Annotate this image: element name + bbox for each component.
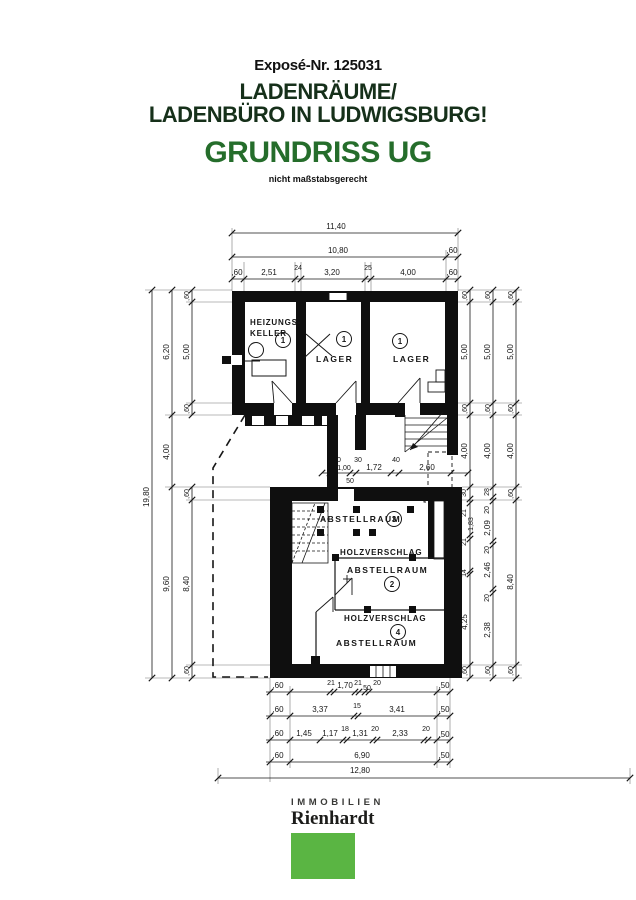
- dim-label: 18: [341, 726, 349, 733]
- dim-label: ,60: [508, 404, 515, 414]
- dim-label: ,60: [446, 246, 458, 255]
- dim-label: ,60: [508, 489, 515, 499]
- dim-label: ,60: [184, 291, 191, 301]
- room-number: 1: [281, 336, 286, 345]
- dim-label: ,60: [231, 268, 243, 277]
- dim-label: 1,17: [322, 729, 338, 738]
- dim-label: 10,80: [328, 246, 349, 255]
- dim-label: 2,46: [483, 562, 492, 578]
- brand-immobilien: IMMOBILIEN: [291, 797, 384, 808]
- dim-label: ,60: [272, 729, 284, 738]
- dim-label: ,60: [462, 666, 469, 676]
- dim-label: ,60: [184, 489, 191, 499]
- dim-label: 5,00: [506, 344, 515, 360]
- dim-label: 21: [461, 538, 468, 546]
- dim-label: 14: [461, 569, 468, 577]
- dim-label: 4,00: [400, 268, 416, 277]
- dim-label: 8,40: [182, 576, 191, 592]
- dim-label: ,50: [438, 730, 450, 739]
- dim-label: 1,00: [337, 465, 351, 472]
- left-dim-labels: 19,80 6,20 4,00 9,60 ,60 5,00 ,60 ,60 8,…: [142, 291, 191, 676]
- room-label-abstellraum-2: ABSTELLRAUM: [347, 565, 428, 575]
- dim-label: 5,00: [182, 344, 191, 360]
- dim-label: ,60: [485, 666, 492, 676]
- dim-label: 2,60: [419, 463, 435, 472]
- room-number: 2: [390, 580, 395, 589]
- dim-label: 5,00: [483, 344, 492, 360]
- room-label-heizungskeller: HEIZUNGS-: [250, 318, 301, 327]
- dim-label: 2,38: [483, 622, 492, 638]
- brand-green-square: [291, 833, 355, 879]
- room-number: 4: [396, 628, 401, 637]
- dim-label: 2,33: [392, 729, 408, 738]
- dim-label: 6,90: [354, 751, 370, 760]
- dim-label: 12,80: [350, 766, 371, 775]
- dim-label: 3,20: [324, 268, 340, 277]
- dim-label: 3,37: [312, 705, 328, 714]
- dim-label: 4,00: [506, 443, 515, 459]
- dim-label: 15: [353, 703, 361, 710]
- dim-label: 3,41: [389, 705, 405, 714]
- lower-building: ABSTELLRAUM 3 HOLZVERSCHLAG ABSTELLRAUM …: [270, 487, 462, 678]
- dim-label: 28: [484, 488, 491, 496]
- bottom-dim-labels: ,60 21 1,70 21 50 20 ,50 ,60 3,37 15 3,4…: [272, 680, 450, 775]
- top-dim-labels: 11,40 10,80 ,60 ,60 2,51 24 3,20 25 4,00…: [231, 222, 458, 277]
- dim-label: ,60: [272, 751, 284, 760]
- room-number: 1: [398, 337, 403, 346]
- dim-label: 21: [354, 680, 362, 687]
- dim-label: ,50: [438, 681, 450, 690]
- room-label-holzverschlag-2: HOLZVERSCHLAG: [344, 614, 426, 623]
- site-boundary-dashed: [213, 415, 268, 677]
- dim-label: ,60: [446, 268, 458, 277]
- dim-label: 21: [327, 680, 335, 687]
- dim-label: 20: [484, 506, 491, 514]
- dim-label: 30: [354, 457, 362, 464]
- dim-label: 30: [461, 489, 468, 497]
- room-label-abstellraum-4: ABSTELLRAUM: [336, 638, 417, 648]
- room-label-lager-1: LAGER: [316, 354, 353, 364]
- dim-label: 40: [392, 457, 400, 464]
- dim-label: 1,83: [468, 517, 475, 531]
- dim-label: ,60: [462, 291, 469, 301]
- dim-label: 20: [371, 726, 379, 733]
- dim-label: ,50: [438, 705, 450, 714]
- expose-page: Exposé-Nr. 125031 LADENRÄUME/ LADENBÜRO …: [0, 0, 636, 900]
- dim-label: ,60: [462, 404, 469, 414]
- dim-label: ,60: [508, 291, 515, 301]
- dim-label: 1,72: [366, 463, 382, 472]
- dim-label: 20: [373, 680, 381, 687]
- dim-label: 1,31: [352, 729, 368, 738]
- partition-nub: [311, 656, 320, 664]
- right-dim-labels: ,60 5,00 ,60 4,00 30 21 1,83 21 14 4,25 …: [460, 291, 515, 676]
- dim-label: 1,70: [337, 681, 353, 690]
- dim-label: 24: [294, 265, 302, 272]
- dim-label: 9,60: [162, 576, 171, 592]
- dim-label: 1,45: [296, 729, 312, 738]
- dim-label: 2,51: [261, 268, 277, 277]
- dim-label: ,60: [272, 681, 284, 690]
- dim-label: 25: [364, 265, 372, 272]
- room-label-holzverschlag-1: HOLZVERSCHLAG: [340, 548, 422, 557]
- dim-label: 4,00: [460, 443, 469, 459]
- dim-label: ,60: [485, 404, 492, 414]
- extension-lines: [145, 228, 630, 784]
- dim-label: 5,00: [460, 344, 469, 360]
- room-number: 1: [342, 335, 347, 344]
- room-label-abstellraum-3: ABSTELLRAUM: [320, 514, 401, 524]
- brand-logo: IMMOBILIEN Rienhardt: [291, 797, 384, 879]
- dim-label: 20: [422, 726, 430, 733]
- dim-label: 6,20: [162, 344, 171, 360]
- dim-label: 50: [346, 478, 354, 485]
- dim-label: ,60: [508, 666, 515, 676]
- dim-label: ,60: [485, 291, 492, 301]
- upper-building: HEIZUNGS- KELLER 1 LAGER 1 LAGER 1: [222, 291, 458, 426]
- boiler-symbols: [222, 343, 286, 377]
- dim-label: ,60: [184, 666, 191, 676]
- dim-label: 21: [461, 509, 468, 517]
- floor-plan-drawing: 11,40 10,80 ,60 ,60 2,51 24 3,20 25 4,00…: [0, 0, 636, 900]
- dim-label: 11,40: [326, 222, 346, 231]
- dim-label: 20: [484, 546, 491, 554]
- dim-label: ,60: [272, 705, 284, 714]
- dim-label: 19,80: [142, 486, 151, 507]
- brand-name: Rienhardt: [291, 808, 384, 830]
- dim-label: 4,00: [483, 443, 492, 459]
- room-number: 3: [392, 515, 397, 524]
- dim-label: 2,09: [483, 520, 492, 536]
- dim-label: 4,00: [162, 444, 171, 460]
- dim-label: 50: [363, 685, 371, 692]
- dim-label: 20: [484, 594, 491, 602]
- room-label-lager-2: LAGER: [393, 354, 430, 364]
- middle-dim: 40 1,00 50 30 1,72 40 2,60: [319, 457, 471, 485]
- dim-label: ,60: [184, 404, 191, 414]
- dim-label: ,50: [438, 751, 450, 760]
- dim-label: 8,40: [506, 574, 515, 590]
